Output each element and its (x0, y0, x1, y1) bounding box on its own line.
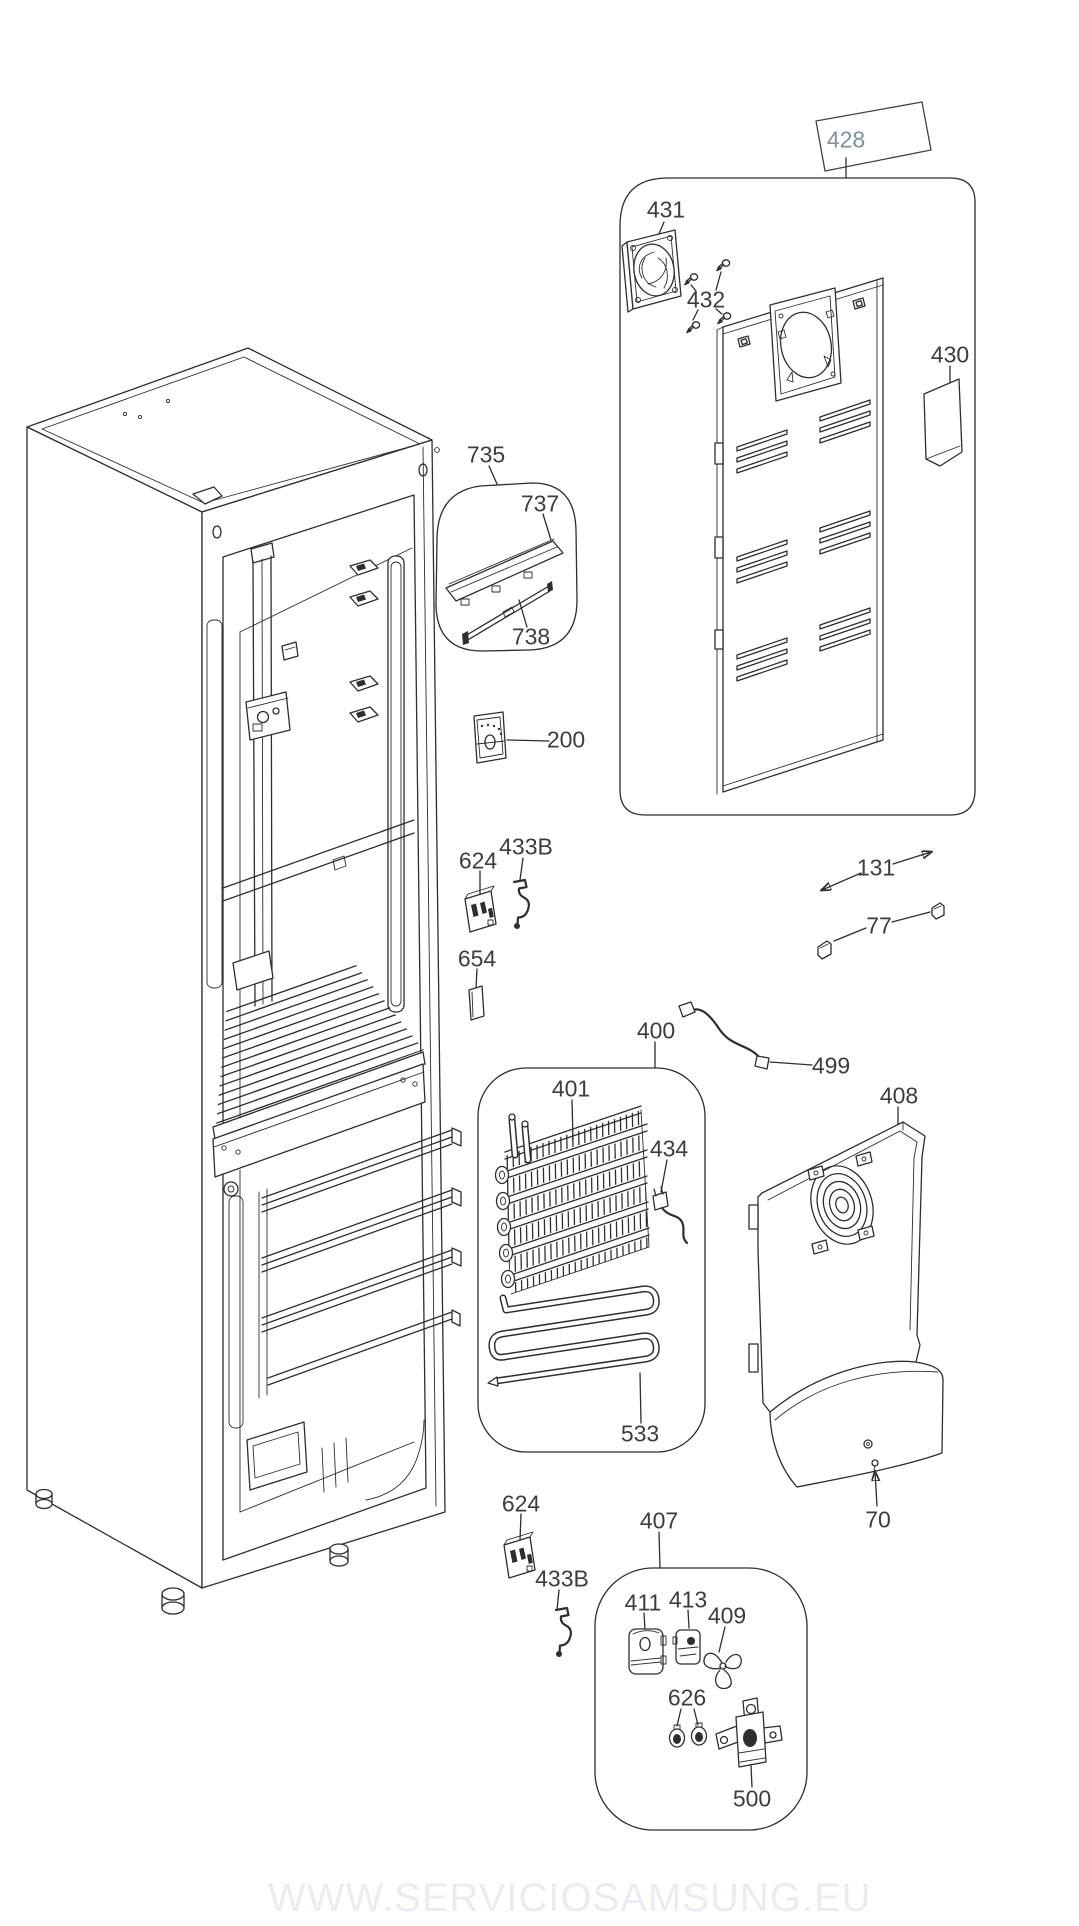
callout-624: 624 (502, 1491, 540, 1518)
callout-409: 409 (708, 1603, 746, 1630)
callout-411: 411 (625, 1590, 662, 1617)
callout-737: 737 (521, 491, 559, 518)
callout-413: 413 (669, 1587, 707, 1614)
callout-500: 500 (733, 1786, 771, 1813)
callout-738: 738 (512, 624, 550, 651)
callout-434: 434 (650, 1136, 688, 1163)
callout-626: 626 (668, 1685, 706, 1712)
callout-654: 654 (458, 946, 496, 973)
callout-431: 431 (647, 197, 685, 224)
callout-432: 432 (687, 287, 725, 314)
callout-77: 77 (866, 913, 892, 940)
callout-layer: 428431432430735737738200624433B654131774… (0, 0, 1079, 1926)
callout-433B: 433B (499, 834, 553, 861)
callout-624: 624 (459, 848, 497, 875)
callout-200: 200 (547, 727, 585, 754)
callout-430: 430 (931, 342, 969, 369)
callout-70: 70 (865, 1507, 891, 1534)
callout-433B: 433B (535, 1566, 589, 1593)
diagram-stage: 428431432430735737738200624433B654131774… (0, 0, 1079, 1926)
callout-400: 400 (637, 1018, 675, 1045)
callout-131: 131 (857, 855, 895, 882)
callout-735: 735 (467, 442, 505, 469)
callout-533: 533 (621, 1421, 659, 1448)
callout-428: 428 (827, 127, 865, 154)
callout-407: 407 (640, 1508, 678, 1535)
callout-408: 408 (880, 1083, 918, 1110)
callout-499: 499 (812, 1053, 850, 1080)
watermark: WWW.SERVICIOSAMSUNG.EU (268, 1876, 872, 1921)
callout-401: 401 (552, 1076, 590, 1103)
